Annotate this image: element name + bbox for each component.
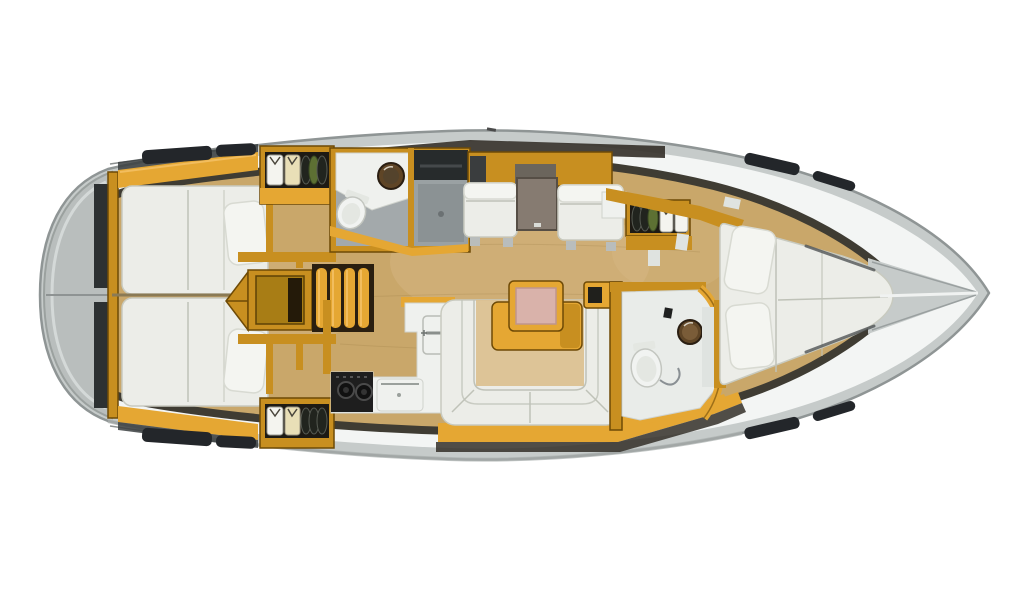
hanging-locker-starboard bbox=[260, 398, 334, 448]
boat-floorplan bbox=[0, 0, 1024, 600]
engine-box-shadow bbox=[288, 278, 302, 322]
steps-icon bbox=[344, 268, 355, 328]
oven-knob bbox=[397, 393, 401, 397]
stair-rail-bottom bbox=[296, 334, 303, 370]
clothes-shirt-icon bbox=[267, 155, 283, 185]
pillow-icon bbox=[725, 302, 775, 370]
head-dark-knob bbox=[663, 307, 673, 318]
washbasin-bowl bbox=[383, 168, 399, 184]
transom-panel-starboard bbox=[94, 302, 108, 408]
chart-table bbox=[517, 178, 557, 230]
deck-hatch-icon bbox=[216, 143, 257, 157]
shower-drain bbox=[438, 211, 444, 217]
chart-table-handle bbox=[534, 223, 541, 227]
corridor-wall-bottom bbox=[238, 334, 336, 344]
clothes-shirt-icon bbox=[285, 155, 300, 185]
stair-rail-top bbox=[296, 256, 303, 268]
cd-stack-icon bbox=[317, 408, 327, 434]
yacht-floorplan-image bbox=[0, 0, 1024, 600]
seat-foot bbox=[566, 241, 576, 250]
clothes-shirt-icon bbox=[267, 407, 283, 435]
cabinet-dark-panel bbox=[470, 156, 486, 184]
shelf-bracket bbox=[648, 250, 660, 266]
clothes-shirt-icon bbox=[285, 407, 300, 435]
seat-foot bbox=[606, 242, 616, 251]
seat-back bbox=[464, 183, 517, 199]
locker-shelf bbox=[260, 188, 334, 204]
port-seat-aft bbox=[464, 183, 517, 247]
aft-head-with-shower bbox=[330, 148, 470, 256]
seat-foot bbox=[503, 238, 513, 247]
berth-step bbox=[702, 307, 714, 387]
shelf-bracket bbox=[675, 233, 689, 251]
stove-burner-center bbox=[343, 387, 349, 393]
shower-divider bbox=[408, 148, 414, 248]
corridor-wall-top bbox=[238, 252, 336, 262]
hanging-locker-port bbox=[260, 146, 334, 204]
cd-stack-icon bbox=[317, 156, 327, 184]
galley-wall bbox=[323, 300, 331, 374]
side-cabinet-hatch bbox=[588, 287, 602, 303]
seat-foot bbox=[470, 237, 480, 246]
companionway-steps bbox=[312, 264, 374, 332]
cabin-door-wall-starboard bbox=[266, 336, 273, 394]
steps-icon bbox=[358, 268, 369, 328]
steps-icon bbox=[330, 268, 341, 328]
table-leaf-inlay bbox=[516, 288, 556, 324]
head-left-wall bbox=[610, 282, 622, 430]
stove-burner-center bbox=[361, 389, 367, 395]
transom-panel-port bbox=[94, 184, 108, 288]
deck-hatch-icon bbox=[216, 435, 257, 449]
